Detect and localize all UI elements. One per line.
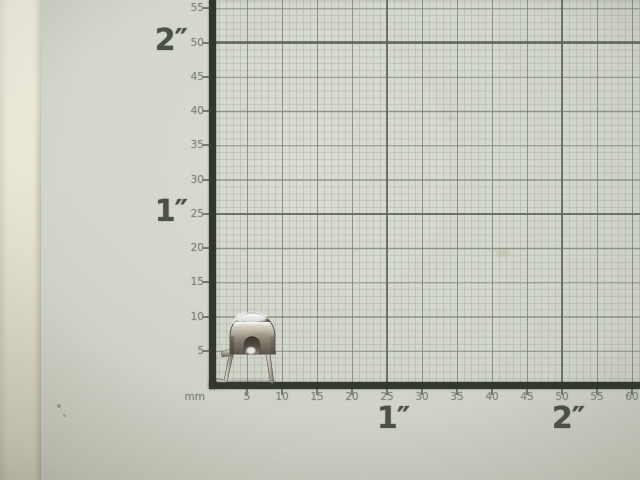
mm-unit-label: mm: [162, 390, 205, 404]
y-inch-label: 1″: [137, 197, 187, 227]
y-tick-label: 55: [170, 1, 204, 15]
x-tick-label: 15: [303, 390, 331, 404]
inch-grid-line-vertical: [386, 0, 388, 386]
y-axis-tick: [203, 213, 211, 215]
y-tick-label: 10: [170, 310, 204, 324]
y-tick-label: 5: [170, 344, 204, 358]
clip-legs: [216, 354, 274, 383]
x-inch-label: 1″: [363, 404, 423, 434]
photo-of-metal-clip-on-grid: 555045403530252015105 510152025303540455…: [0, 0, 640, 480]
inch-grid-line-vertical: [561, 0, 563, 386]
x-tick-label: 20: [338, 390, 366, 404]
y-inch-label: 2″: [137, 26, 187, 56]
y-axis-tick: [203, 247, 211, 249]
y-axis-tick: [203, 7, 211, 9]
y-tick-label: 15: [170, 275, 204, 289]
metal-clip: [210, 303, 288, 393]
x-inch-label: 2″: [538, 404, 598, 434]
paper-speck: [63, 414, 66, 417]
x-tick-label: 45: [513, 390, 541, 404]
y-axis-tick: [203, 144, 211, 146]
y-tick-label: 35: [170, 138, 204, 152]
x-tick-label: 40: [478, 390, 506, 404]
y-axis-tick: [203, 42, 211, 44]
inch-grid-line-horizontal: [212, 213, 640, 215]
x-tick-label: 35: [443, 390, 471, 404]
clip-dome: [230, 313, 275, 355]
y-axis-tick: [203, 110, 211, 112]
paper-speck: [57, 404, 61, 408]
x-tick-label: 55: [583, 390, 611, 404]
y-axis-tick: [203, 179, 211, 181]
x-tick-label: 30: [408, 390, 436, 404]
y-axis-tick: [203, 281, 211, 283]
y-tick-label: 40: [170, 104, 204, 118]
y-axis-tick: [203, 76, 211, 78]
graph-paper: 555045403530252015105 510152025303540455…: [41, 0, 640, 480]
y-tick-label: 45: [170, 70, 204, 84]
y-tick-label: 20: [170, 241, 204, 255]
backing-strip: [0, 0, 41, 480]
x-tick-label: 60: [618, 390, 640, 404]
inch-grid-line-horizontal: [212, 41, 640, 43]
y-tick-label: 30: [170, 173, 204, 187]
